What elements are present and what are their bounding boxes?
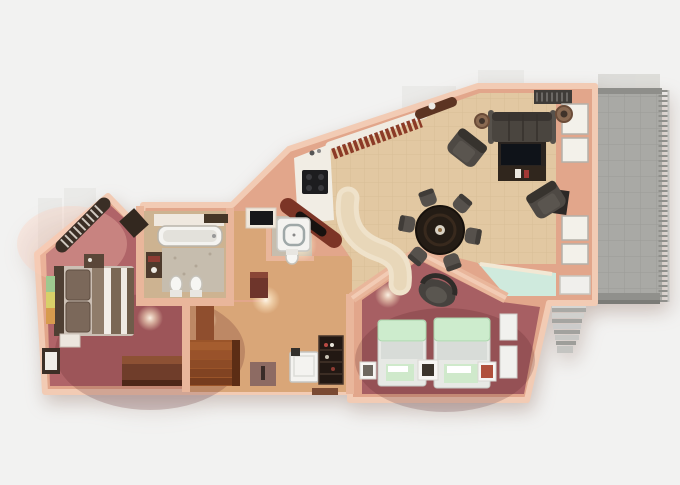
stair-step xyxy=(552,313,584,318)
stair-step xyxy=(552,308,586,312)
wall-twin-left xyxy=(346,294,354,394)
storage-chest xyxy=(122,356,182,386)
toilet xyxy=(170,276,182,292)
bottle xyxy=(324,343,328,347)
fridge-item xyxy=(291,348,300,356)
stair-step xyxy=(552,319,582,323)
stair-step xyxy=(554,330,580,334)
shower-drain xyxy=(293,234,296,237)
dining-centerpiece-dot xyxy=(438,228,442,232)
sink-basin xyxy=(317,149,321,153)
sofa xyxy=(488,110,556,144)
burner xyxy=(306,174,312,180)
wall-art-strip xyxy=(46,276,55,324)
double-bed xyxy=(54,266,134,336)
bed-pillow xyxy=(388,366,408,372)
marble-speckle xyxy=(183,273,186,276)
bathtub-basin xyxy=(163,230,217,242)
toilet-tank xyxy=(170,290,182,297)
tv-screen xyxy=(501,144,541,165)
stair-step xyxy=(553,324,581,329)
vanity-sink xyxy=(151,267,157,273)
terrace-top-edge xyxy=(594,88,662,94)
vanity-towel xyxy=(148,256,160,262)
terrace-deck xyxy=(594,88,662,302)
bed-pillow xyxy=(447,366,471,373)
terrace-bottom-shadow xyxy=(594,300,660,304)
nightstand-dark xyxy=(84,254,104,268)
entry-door-mat xyxy=(312,388,338,395)
twin-window-panel xyxy=(500,346,517,378)
step xyxy=(190,369,234,377)
marble-speckle xyxy=(174,257,177,260)
bath-shelf xyxy=(204,214,228,223)
wooden-steps xyxy=(190,340,240,386)
blanket-stripe xyxy=(121,268,127,334)
window-pane xyxy=(562,138,588,162)
bed-mid xyxy=(437,342,487,360)
framed-picture-1 xyxy=(360,362,376,379)
step xyxy=(190,342,234,350)
floorplan-canvas xyxy=(0,0,680,485)
bath-vanity xyxy=(146,252,162,278)
burner xyxy=(318,174,324,180)
wc-toilet-tank xyxy=(286,249,298,255)
blanket-stripe xyxy=(104,268,111,334)
pillow xyxy=(66,302,90,332)
bottle xyxy=(330,343,334,347)
blanket-stripe xyxy=(111,268,121,334)
terrace-door xyxy=(560,276,590,294)
bed-canopy xyxy=(378,320,426,341)
marble-speckle xyxy=(195,265,198,268)
bench-lamp xyxy=(261,366,265,380)
step-side xyxy=(232,340,240,386)
window-pane xyxy=(562,216,588,240)
sink-faucet xyxy=(310,151,315,156)
blanket-stripe xyxy=(127,268,134,334)
door-leaf xyxy=(196,306,214,340)
bottle xyxy=(325,355,329,359)
twin-window-panel xyxy=(500,314,517,340)
bottle xyxy=(331,367,335,371)
blanket-stripe xyxy=(92,268,104,334)
step xyxy=(190,351,234,359)
step xyxy=(190,378,232,385)
bed-canopy xyxy=(434,318,490,341)
burner xyxy=(306,185,312,191)
table-item-red xyxy=(524,170,529,178)
table-item-white xyxy=(515,169,521,178)
burner xyxy=(318,185,324,191)
side-table-left xyxy=(475,114,489,128)
marble-speckle xyxy=(209,253,212,256)
bidet xyxy=(190,276,202,292)
stair-landing xyxy=(557,346,573,353)
nightstand-lamp xyxy=(88,258,92,262)
chest-top xyxy=(122,356,182,364)
floor-mat-inner xyxy=(45,352,57,370)
stair-step xyxy=(555,335,579,340)
vanity-desk-top xyxy=(250,211,273,225)
window-pane xyxy=(562,244,588,264)
framed-picture-3 xyxy=(478,362,496,381)
wall-bedroom-entry xyxy=(182,302,190,392)
sofa-back xyxy=(492,112,552,121)
tub-faucet xyxy=(212,234,216,238)
mini-fridge xyxy=(290,348,318,382)
headboard xyxy=(54,266,64,336)
step xyxy=(190,360,234,368)
minibar-cabinet xyxy=(319,336,343,384)
console-table-top xyxy=(250,272,268,278)
bed-mid xyxy=(381,342,423,359)
framed-picture-2 xyxy=(418,360,438,380)
tv-console xyxy=(498,142,546,181)
bidet-tank xyxy=(190,290,202,297)
coffee-table xyxy=(498,166,546,181)
cabinet-item xyxy=(429,103,436,110)
chest-base xyxy=(122,380,182,386)
side-table-right xyxy=(556,106,572,122)
pillow xyxy=(66,270,90,300)
stair-step xyxy=(556,341,576,345)
cooktop xyxy=(302,170,328,194)
nightstand-white xyxy=(60,334,80,347)
floorplan-render xyxy=(0,0,680,485)
light-glow xyxy=(137,305,163,331)
